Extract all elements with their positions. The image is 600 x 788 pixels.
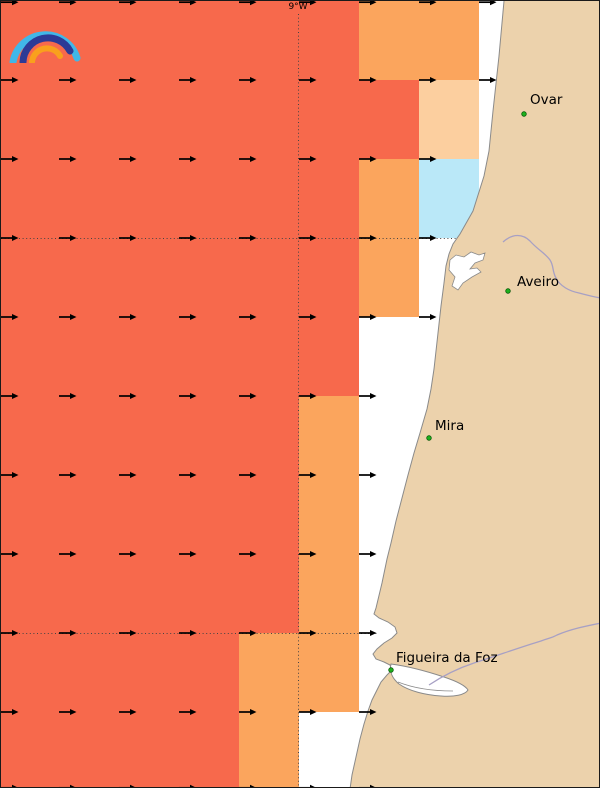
wind-speed-cell — [299, 396, 359, 475]
wind-arrow-east — [479, 77, 497, 83]
wind-speed-cell — [299, 554, 359, 633]
rainbow-logo — [5, 11, 87, 63]
meridian-label: 9°W — [288, 3, 307, 12]
wind-arrow-east — [419, 314, 437, 320]
wind-speed-cell — [1, 317, 359, 396]
city-label-aveiro: Aveiro — [517, 276, 559, 290]
wind-arrow-east — [359, 551, 377, 557]
wind-arrow-east — [359, 630, 377, 636]
wind-arrow-east — [359, 472, 377, 478]
wind-speed-cell — [1, 238, 359, 317]
city-dot — [389, 668, 394, 673]
wind-speed-cell — [1, 712, 239, 788]
wind-speed-cell — [359, 159, 419, 238]
city-label-figueira-da-foz: Figueira da Foz — [396, 652, 498, 666]
weather-forecast-map: 9°W Ovar Aveiro Mira Figueira da Foz — [0, 0, 600, 788]
wind-speed-cell — [419, 80, 479, 159]
city-label-mira: Mira — [435, 420, 464, 434]
wind-arrow-east — [359, 393, 377, 399]
city-dot — [427, 436, 432, 441]
wind-speed-cell — [1, 396, 299, 475]
map-canvas — [1, 1, 600, 788]
wind-speed-cell — [239, 712, 299, 788]
city-dot — [522, 112, 527, 117]
wind-speed-cell — [1, 475, 299, 554]
city-dot — [506, 289, 511, 294]
wind-speed-cell — [299, 475, 359, 554]
wind-speed-cell — [1, 633, 239, 712]
wind-speed-cell — [1, 80, 419, 159]
wind-speed-cell — [1, 554, 299, 633]
wind-arrow-east — [479, 1, 497, 5]
city-label-ovar: Ovar — [530, 94, 562, 108]
wind-speed-cell — [1, 159, 359, 238]
logo-inner-arc-icon — [32, 48, 60, 62]
wind-speed-cell — [359, 1, 479, 80]
wind-speed-cell — [359, 238, 419, 317]
